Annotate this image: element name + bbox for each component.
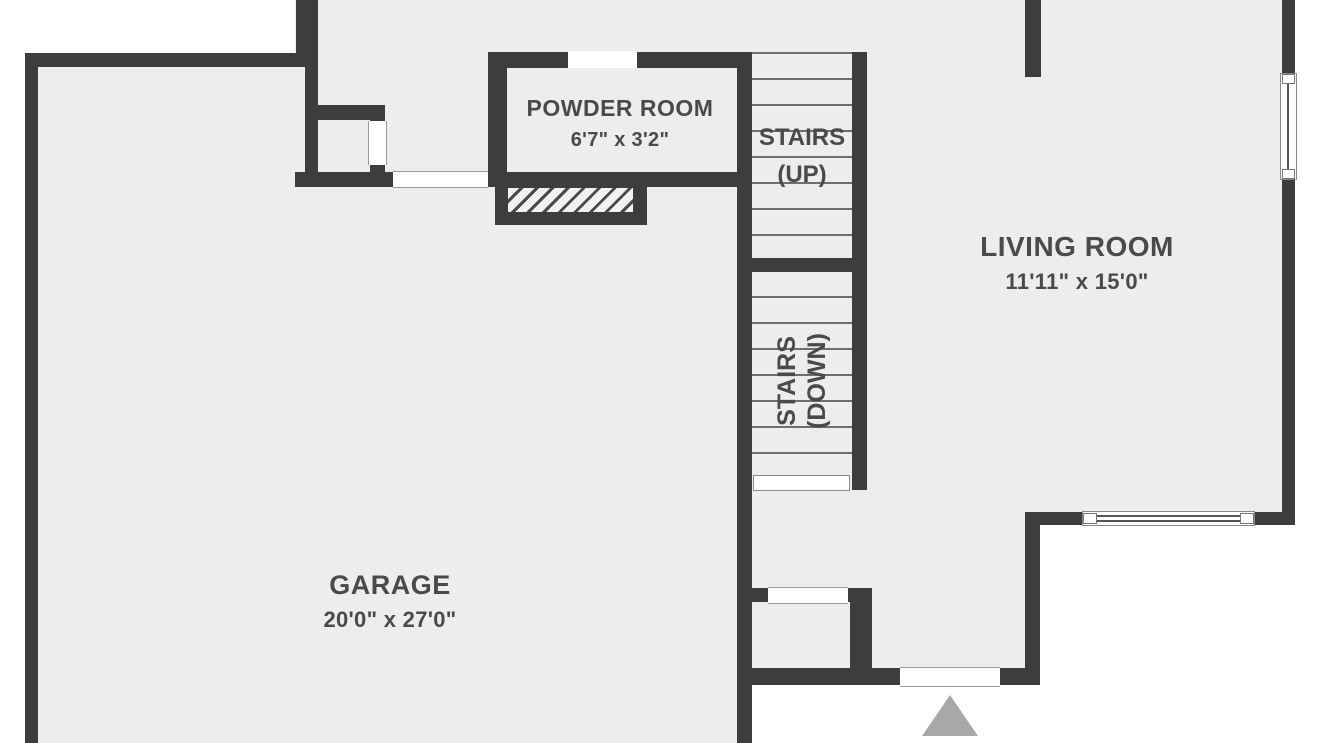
room-label-living-room: LIVING ROOM 11'11" x 15'0" bbox=[927, 230, 1227, 295]
room-name: LIVING ROOM bbox=[927, 230, 1227, 263]
floor-plan: POWDER ROOM 6'7" x 3'2" STAIRS (UP) STAI… bbox=[0, 0, 1320, 743]
door-opening-closet bbox=[368, 121, 387, 165]
wall-garage-top bbox=[25, 53, 318, 67]
room-label-garage: GARAGE 20'0" x 27'0" bbox=[265, 570, 515, 633]
wall-garage-left bbox=[25, 53, 38, 743]
door-opening-garage bbox=[393, 171, 488, 188]
exterior-area bbox=[752, 685, 1040, 743]
exterior-area bbox=[0, 0, 295, 53]
stairs-name: STAIRS bbox=[752, 122, 852, 154]
wall-stairs-mid bbox=[737, 258, 867, 272]
room-label-powder-room: POWDER ROOM 6'7" x 3'2" bbox=[495, 94, 745, 152]
stairs-direction: (DOWN) bbox=[802, 333, 832, 429]
window-living-room-bottom bbox=[1082, 511, 1255, 526]
door-opening-powder-room bbox=[568, 51, 637, 68]
room-name: POWDER ROOM bbox=[495, 94, 745, 122]
room-dimensions: 20'0" x 27'0" bbox=[265, 607, 515, 633]
room-name: GARAGE bbox=[265, 570, 515, 601]
room-label-stairs-up: STAIRS (UP) bbox=[752, 122, 852, 191]
wall-kitchen-stub bbox=[1025, 0, 1041, 77]
stairs-direction: (UP) bbox=[752, 159, 852, 191]
room-dimensions: 11'11" x 15'0" bbox=[927, 269, 1227, 295]
entrance-arrow-icon bbox=[922, 695, 978, 736]
door-opening-hallway bbox=[768, 587, 848, 604]
wall-mudroom-left bbox=[296, 0, 318, 62]
room-label-stairs-down: STAIRS (DOWN) bbox=[742, 278, 862, 483]
window-living-room-right bbox=[1280, 73, 1297, 180]
wall-foyer-right bbox=[1025, 512, 1040, 685]
room-dimensions: 6'7" x 3'2" bbox=[495, 128, 745, 152]
hatched-area bbox=[508, 188, 633, 212]
exterior-area bbox=[1040, 525, 1295, 743]
door-opening-entry bbox=[900, 667, 1000, 687]
stairs-name: STAIRS bbox=[772, 333, 802, 429]
wall-entry-bottom-left bbox=[737, 668, 900, 685]
